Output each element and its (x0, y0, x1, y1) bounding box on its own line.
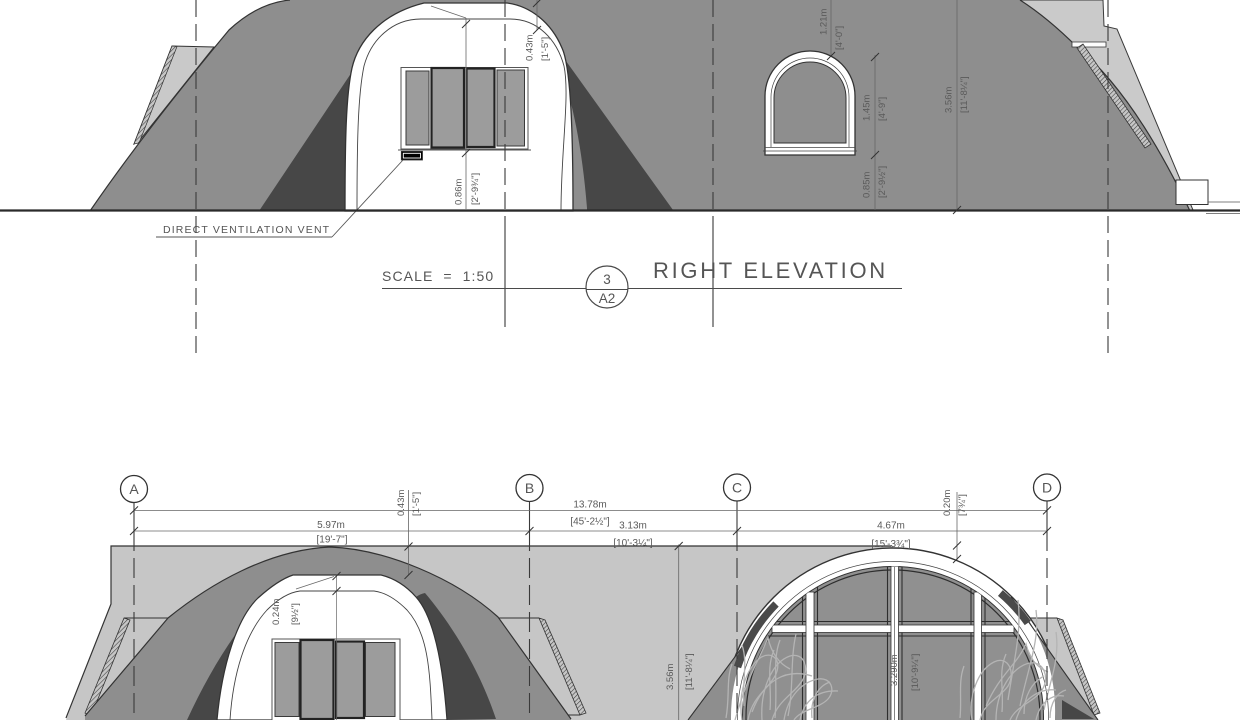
svg-text:3.56m: 3.56m (944, 87, 955, 113)
svg-text:[45'-2½"]: [45'-2½"] (570, 517, 610, 528)
svg-text:[9½"]: [9½"] (290, 603, 301, 625)
svg-text:[2'-9½"]: [2'-9½"] (877, 166, 888, 198)
svg-text:A2: A2 (599, 291, 616, 306)
svg-text:[1'-5"]: [1'-5"] (540, 37, 551, 61)
svg-text:[7¾"]: [7¾"] (957, 494, 968, 516)
svg-text:[1'-5"]: [1'-5"] (411, 492, 422, 516)
svg-text:0.24m: 0.24m (271, 599, 282, 625)
svg-text:[19'-7"]: [19'-7"] (316, 535, 347, 546)
svg-text:A: A (129, 481, 139, 497)
svg-text:C: C (732, 480, 742, 496)
svg-text:1.45m: 1.45m (862, 95, 873, 121)
svg-text:[4'-0"]: [4'-0"] (834, 26, 845, 50)
svg-text:3: 3 (603, 272, 611, 287)
svg-text:3.290m: 3.290m (889, 654, 900, 686)
svg-text:[11'-8¼"]: [11'-8¼"] (959, 76, 970, 113)
svg-text:4.67m: 4.67m (877, 521, 905, 532)
svg-text:1.21m: 1.21m (819, 9, 830, 35)
svg-text:RIGHT ELEVATION: RIGHT ELEVATION (653, 258, 888, 283)
svg-text:[10'-9¼"]: [10'-9¼"] (910, 654, 921, 691)
svg-text:3.56m: 3.56m (665, 664, 676, 690)
svg-text:B: B (525, 480, 534, 496)
svg-text:5.97m: 5.97m (317, 520, 345, 531)
svg-text:[10'-3¼"]: [10'-3¼"] (613, 537, 653, 549)
svg-text:3.13m: 3.13m (619, 521, 647, 532)
svg-text:13.78m: 13.78m (573, 500, 606, 511)
svg-text:0.86m: 0.86m (454, 179, 465, 205)
svg-text:[2'-9¾"]: [2'-9¾"] (470, 173, 481, 205)
svg-text:[15'-3¾"]: [15'-3¾"] (871, 539, 911, 550)
svg-text:D: D (1042, 480, 1052, 496)
svg-text:0.85m: 0.85m (862, 172, 873, 198)
svg-text:DIRECT VENTILATION VENT: DIRECT VENTILATION VENT (163, 224, 330, 236)
svg-text:0.43m: 0.43m (396, 490, 407, 516)
svg-text:0.43m: 0.43m (525, 35, 536, 61)
svg-text:[4'-9"]: [4'-9"] (877, 97, 888, 121)
svg-text:0.20m: 0.20m (942, 490, 953, 516)
svg-text:[11'-8¼"]: [11'-8¼"] (684, 653, 695, 690)
svg-text:SCALE = 1:50: SCALE = 1:50 (382, 268, 494, 284)
